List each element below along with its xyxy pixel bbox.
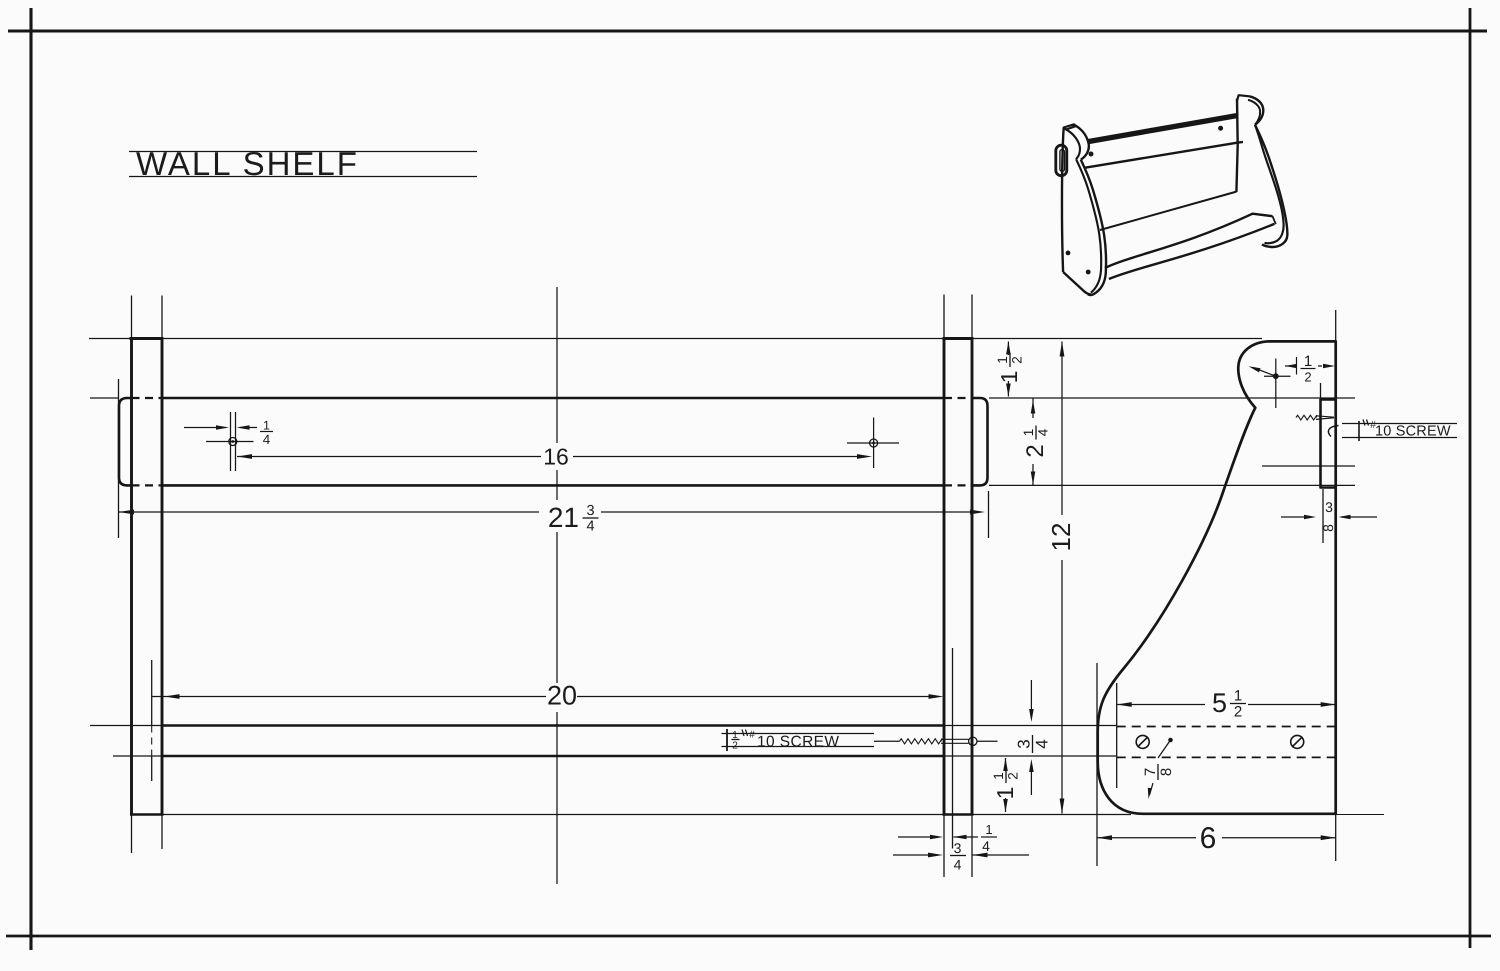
svg-text:4: 4 [586,519,594,535]
svg-text:21: 21 [548,502,579,533]
svg-text:#: # [749,730,755,741]
svg-text:2: 2 [1022,444,1049,457]
svg-text:3: 3 [954,840,962,856]
svg-text:2: 2 [732,741,738,752]
svg-text:1: 1 [1234,688,1242,705]
svg-text:1: 1 [1304,353,1312,370]
svg-text:4: 4 [263,432,271,447]
svg-text:1: 1 [263,419,270,433]
svg-text:5: 5 [1212,688,1227,718]
svg-text:2: 2 [1010,356,1025,364]
svg-text:6: 6 [1200,822,1217,855]
svg-text:1: 1 [1021,429,1036,437]
svg-text:1: 1 [985,822,992,837]
svg-text:7: 7 [1142,768,1159,776]
svg-text:3: 3 [586,503,594,519]
svg-text:3: 3 [1015,739,1034,748]
svg-text:3: 3 [1325,499,1333,515]
svg-text:1: 1 [995,356,1010,364]
svg-text:2: 2 [1304,370,1311,385]
svg-text:1: 1 [991,772,1006,780]
svg-text:10 SCREW: 10 SCREW [1375,424,1451,440]
svg-text:8: 8 [1158,768,1175,776]
svg-text:16: 16 [543,444,569,470]
svg-text:1: 1 [992,787,1018,800]
svg-text:1: 1 [996,371,1022,384]
svg-text:20: 20 [547,681,577,711]
svg-text:2: 2 [1006,772,1021,780]
svg-text:10 SCREW: 10 SCREW [757,733,839,750]
svg-text:12: 12 [1046,523,1076,552]
svg-text:2: 2 [1234,703,1242,720]
svg-text:4: 4 [982,838,990,854]
svg-text:4: 4 [954,857,962,873]
svg-text:WALL SHELF: WALL SHELF [136,145,359,182]
svg-text:8: 8 [1320,524,1336,532]
svg-text:4: 4 [1036,428,1051,436]
svg-text:4: 4 [1032,739,1051,748]
